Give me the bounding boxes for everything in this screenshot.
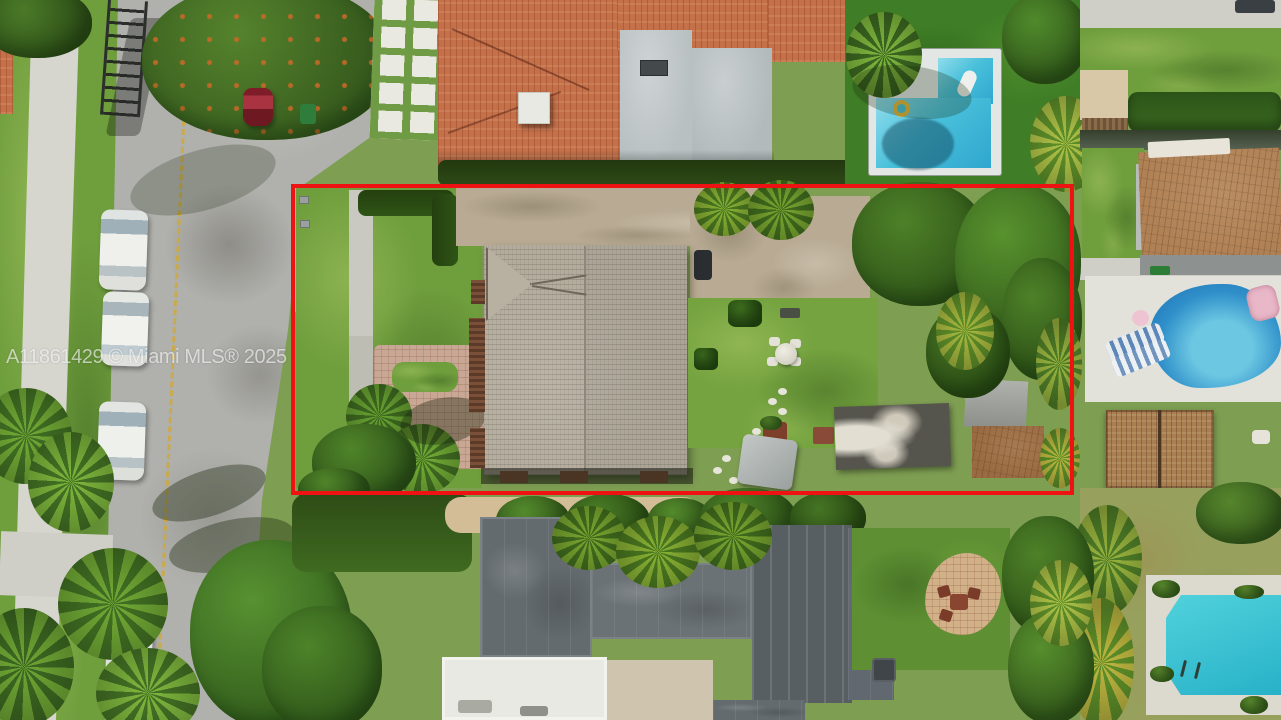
lap-pool xyxy=(1166,595,1281,695)
shade-tree xyxy=(262,606,382,720)
brown-tile-roof-house xyxy=(1138,148,1281,261)
rear-house-roof xyxy=(713,700,805,720)
trash-bin xyxy=(300,104,316,124)
flat-roof xyxy=(620,30,692,170)
palm-tree xyxy=(1030,560,1092,646)
patio-furniture xyxy=(1235,0,1275,13)
poolside-shrub xyxy=(1234,585,1264,599)
outdoor-chair xyxy=(967,587,981,600)
poolside-shrub xyxy=(1240,696,1268,714)
palm-tree xyxy=(694,502,772,570)
palm-tree xyxy=(616,516,700,588)
palm-shadow-in-pool xyxy=(882,118,954,170)
palm-tree xyxy=(58,548,168,660)
parked-car xyxy=(99,209,149,291)
rooftop-equipment xyxy=(520,706,548,716)
palm-tree xyxy=(552,506,626,570)
palm-tree xyxy=(28,432,114,532)
courtyard xyxy=(607,660,713,720)
mls-watermark: A11861429 © Miami MLS® 2025 xyxy=(6,346,287,369)
tile-roof-house xyxy=(438,0,624,166)
pool-toy xyxy=(1252,430,1270,444)
rooftop-equipment xyxy=(458,700,492,713)
ac-unit xyxy=(872,658,896,682)
poolside-shrub xyxy=(1152,580,1180,598)
property-boundary xyxy=(291,184,1074,495)
outdoor-table xyxy=(950,594,968,610)
hedge-row xyxy=(438,160,862,186)
roof-vent xyxy=(640,60,668,76)
aerial-photo: A11861429 © Miami MLS® 2025 xyxy=(0,0,1281,720)
chimney xyxy=(518,92,550,124)
garden-tree xyxy=(1002,0,1088,84)
pool-float-pink xyxy=(1132,310,1149,326)
tan-patio xyxy=(1080,70,1128,120)
garden-bench xyxy=(1150,266,1170,275)
red-car xyxy=(243,88,273,126)
yard-tree xyxy=(1196,482,1281,544)
tiki-hut-ridge xyxy=(1158,410,1161,488)
poolside-shrub xyxy=(1150,666,1174,682)
ladder-trailer xyxy=(100,0,148,117)
side-lawn xyxy=(1082,148,1144,260)
hedge-band xyxy=(292,494,472,572)
hedge-row xyxy=(1128,92,1281,132)
